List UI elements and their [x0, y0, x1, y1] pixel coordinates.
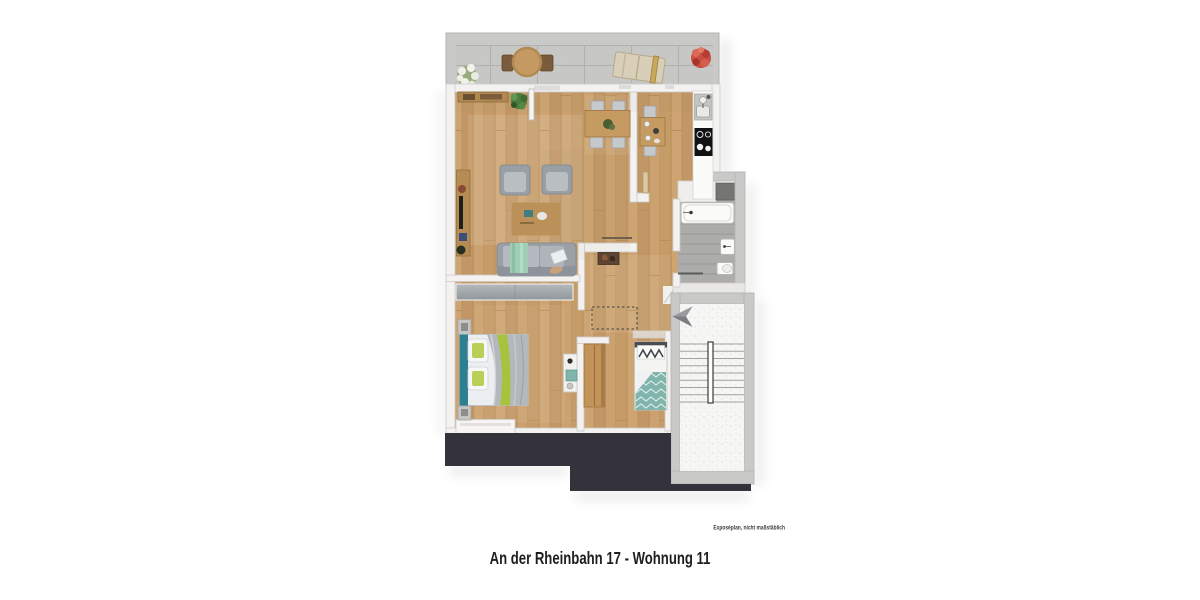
svg-text:An der Rheinbahn 17 - Wohnung: An der Rheinbahn 17 - Wohnung 11 [490, 549, 711, 568]
svg-text:Exposéplan, nicht maßstäblich: Exposéplan, nicht maßstäblich [713, 525, 785, 532]
